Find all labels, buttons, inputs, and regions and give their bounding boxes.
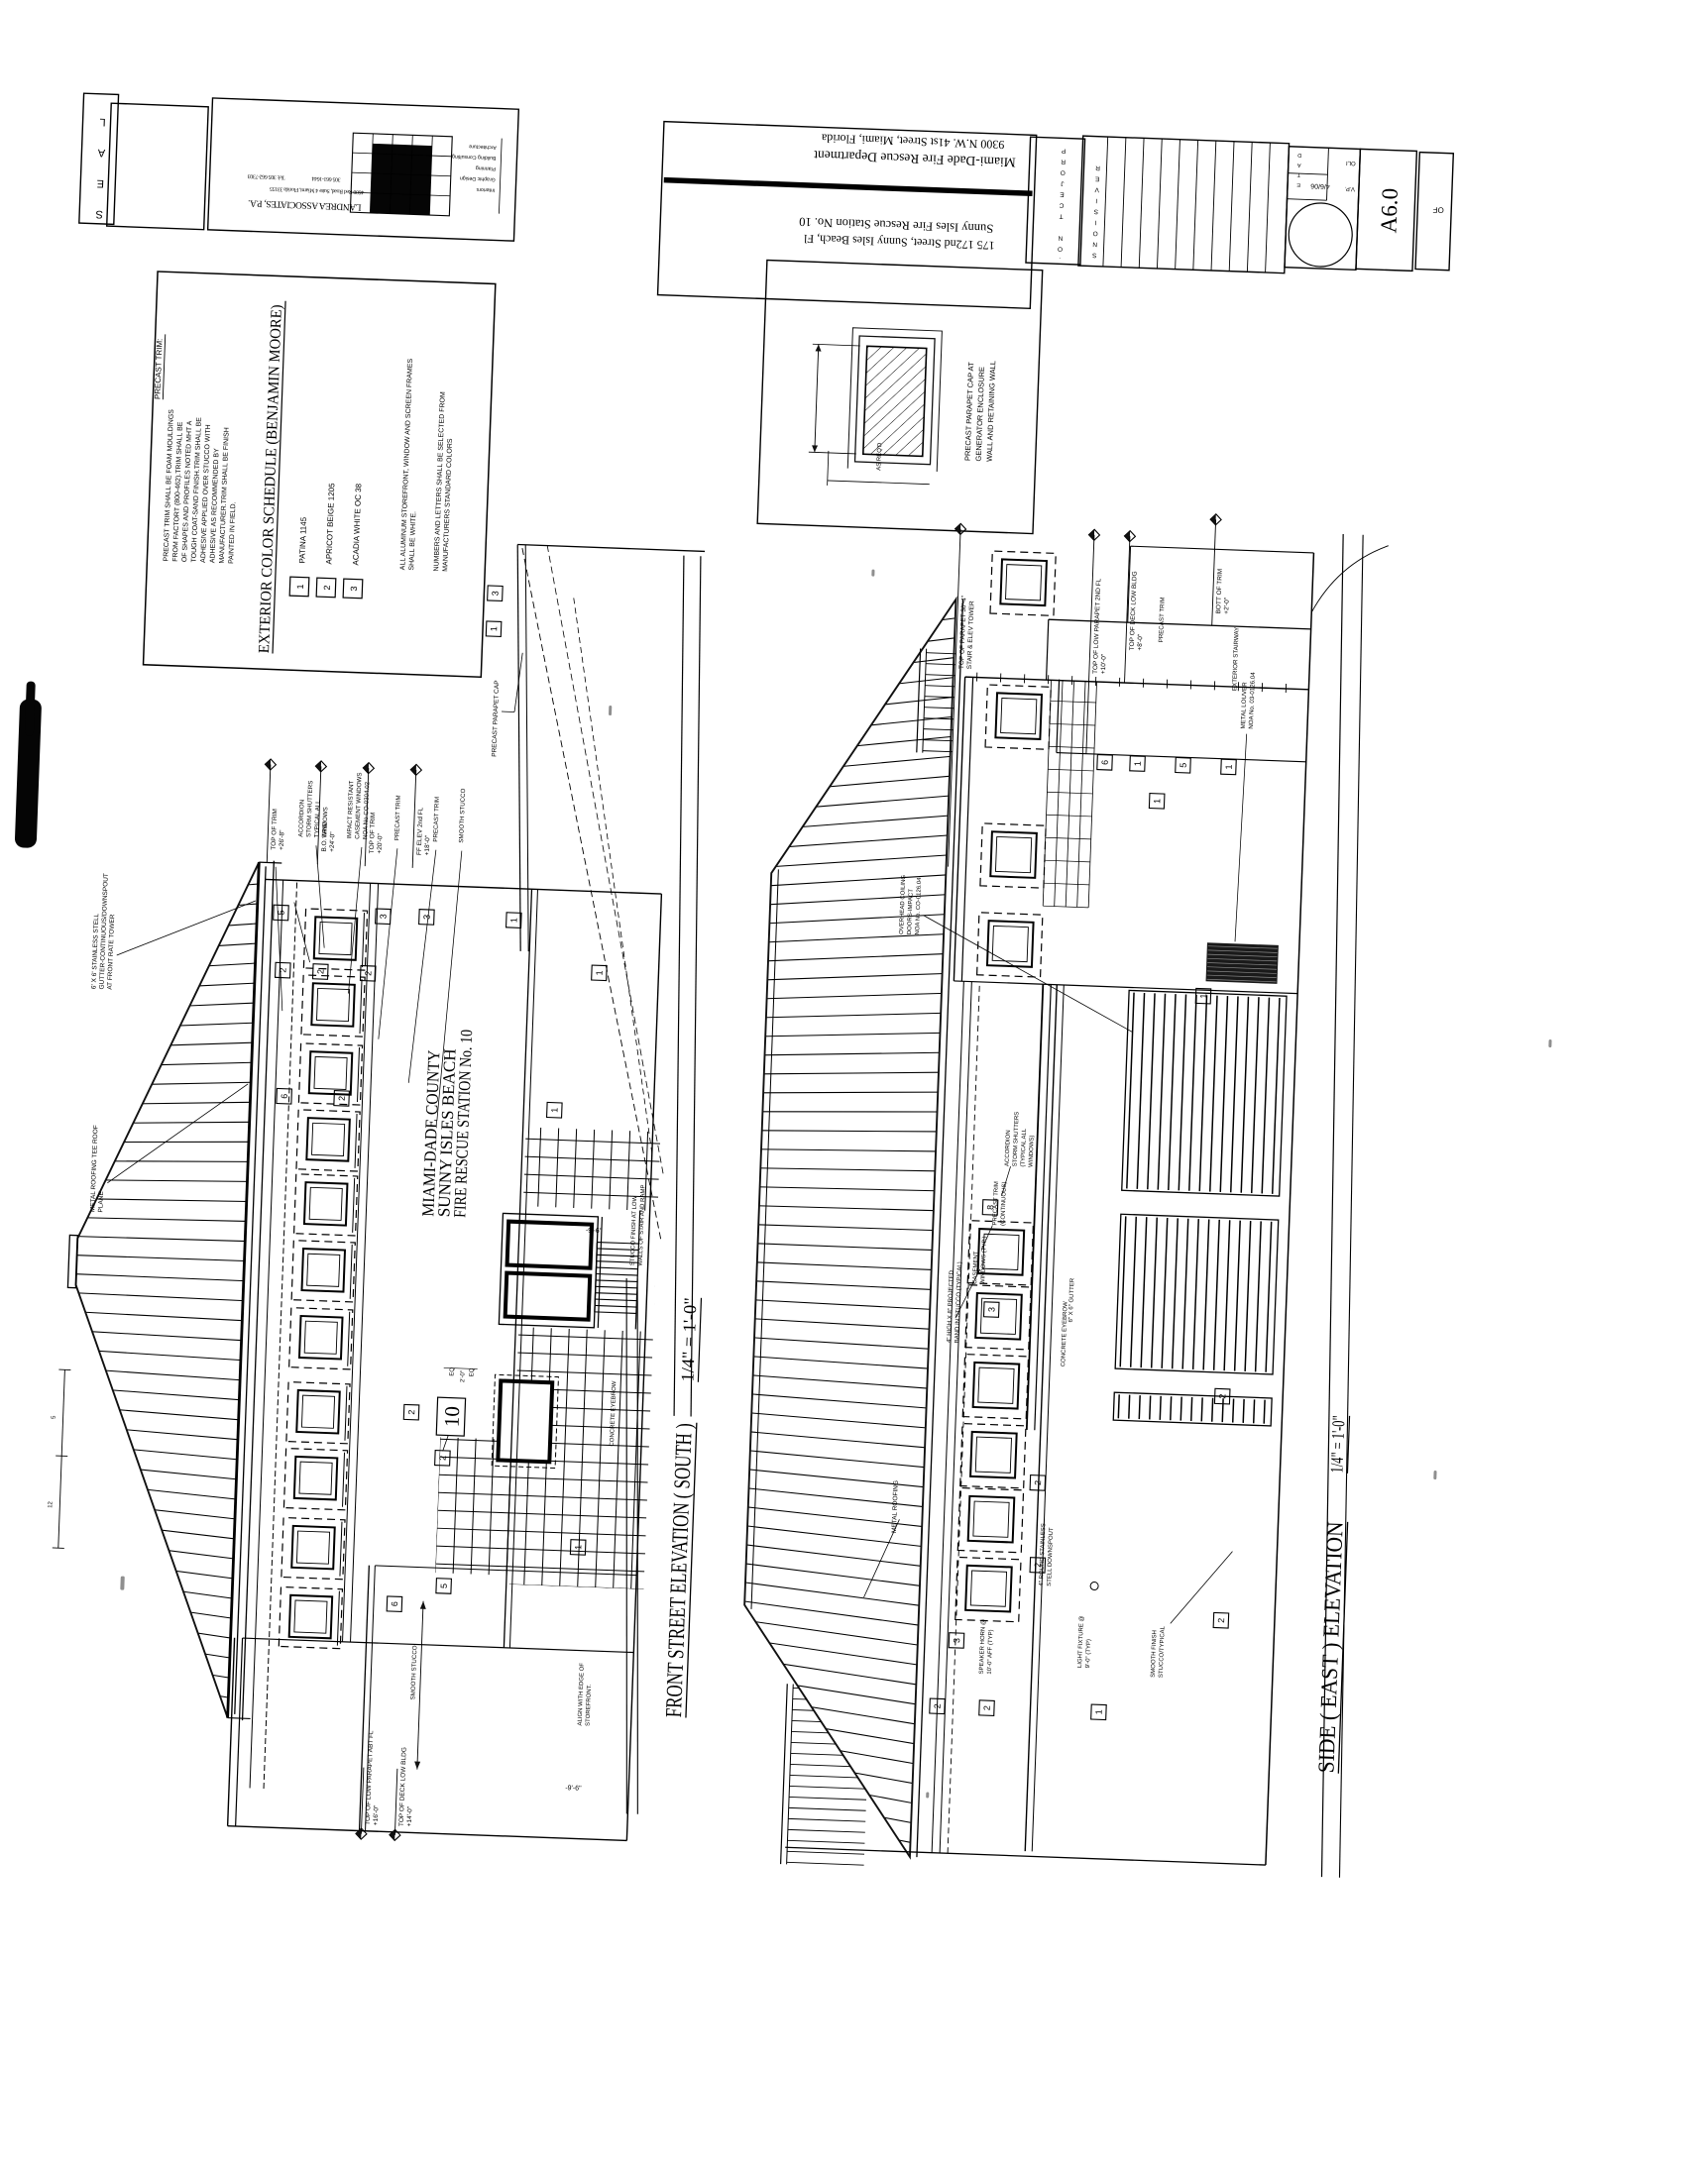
svg-text:+20'-0": +20'-0" — [377, 832, 385, 853]
svg-text:R: R — [1095, 164, 1100, 171]
svg-text:E: E — [1296, 181, 1300, 187]
svg-text:PATINA 1145: PATINA 1145 — [297, 516, 308, 564]
svg-text:CASEMENT: CASEMENT — [972, 1251, 979, 1284]
svg-text:1: 1 — [1198, 993, 1208, 998]
svg-text:TYPICAL ALL: TYPICAL ALL — [313, 800, 321, 838]
svg-text:1: 1 — [1133, 761, 1143, 766]
svg-text:2'-0": 2'-0" — [460, 1370, 466, 1382]
svg-text:L: L — [99, 116, 106, 128]
svg-text:A6.0: A6.0 — [1376, 187, 1403, 233]
svg-text:D: D — [1297, 152, 1301, 158]
svg-text:2: 2 — [315, 969, 325, 974]
svg-text:3: 3 — [378, 914, 388, 919]
svg-text:J: J — [1061, 179, 1065, 186]
svg-text:ACCORDION: ACCORDION — [297, 800, 305, 837]
svg-text:3: 3 — [421, 915, 431, 920]
svg-text:OF: OF — [1432, 205, 1444, 214]
svg-text:5: 5 — [1179, 763, 1188, 768]
svg-text:3: 3 — [952, 1638, 961, 1643]
svg-text:1: 1 — [489, 626, 499, 631]
svg-text:Interiors: Interiors — [476, 186, 495, 193]
svg-text:2: 2 — [406, 1409, 416, 1414]
svg-text:-9'-6": -9'-6" — [586, 1227, 603, 1235]
svg-text:2: 2 — [1033, 1480, 1043, 1485]
svg-text:12: 12 — [48, 1500, 54, 1508]
svg-text:O: O — [1061, 168, 1066, 175]
svg-text:1: 1 — [573, 1545, 583, 1550]
svg-text:+16'-0": +16'-0" — [373, 1804, 381, 1825]
svg-text:10: 10 — [440, 1406, 465, 1428]
svg-text:305 661-1644: 305 661-1644 — [311, 175, 340, 182]
svg-text:2: 2 — [1217, 1393, 1227, 1398]
svg-text:R: R — [1061, 158, 1066, 164]
svg-text:+10'-0": +10'-0" — [1100, 653, 1108, 674]
svg-text:4/6/06: 4/6/06 — [1310, 182, 1330, 190]
svg-text:2: 2 — [982, 1705, 992, 1710]
svg-text:N: N — [1092, 241, 1097, 248]
svg-text:WINDOWS: WINDOWS — [321, 807, 329, 838]
svg-text:1/4" = 1'-0": 1/4" = 1'-0" — [677, 1297, 700, 1382]
svg-text:1/4" = 1'-0": 1/4" = 1'-0" — [1326, 1415, 1348, 1474]
svg-text:3: 3 — [349, 586, 359, 591]
svg-text:+8'-0": +8'-0" — [1137, 633, 1145, 651]
svg-text:1: 1 — [549, 1108, 559, 1113]
svg-text:+18'-0": +18'-0" — [424, 834, 432, 855]
svg-text:O: O — [1092, 230, 1097, 237]
svg-text:A: A — [1297, 162, 1301, 167]
svg-text:+26'-8": +26'-8" — [279, 829, 286, 850]
svg-text:6: 6 — [280, 1094, 289, 1099]
svg-text:P: P — [1062, 147, 1067, 154]
svg-text:8: 8 — [985, 1205, 995, 1210]
svg-text:V.P.: V.P. — [1345, 185, 1356, 191]
svg-text:A: A — [97, 147, 105, 159]
svg-text:2: 2 — [337, 1096, 347, 1101]
svg-text:C: C — [1059, 201, 1064, 208]
svg-text:6: 6 — [1100, 760, 1110, 765]
svg-text:1: 1 — [1094, 1709, 1104, 1714]
svg-text:Planning: Planning — [476, 164, 497, 171]
svg-text:1: 1 — [295, 584, 305, 589]
svg-text:2: 2 — [278, 967, 287, 972]
svg-text:T: T — [1060, 212, 1064, 219]
svg-text:2: 2 — [1033, 1563, 1043, 1568]
svg-text:2: 2 — [1216, 1618, 1226, 1623]
svg-text:E: E — [96, 177, 104, 189]
svg-text:+24'-0": +24'-0" — [329, 831, 337, 852]
svg-text:5: 5 — [439, 1583, 449, 1588]
svg-text:2: 2 — [322, 585, 332, 590]
svg-text:PLANE: PLANE — [97, 1190, 105, 1212]
svg-text:1: 1 — [1224, 764, 1234, 769]
svg-text:+14'-0": +14'-0" — [406, 1805, 414, 1826]
svg-text:3: 3 — [491, 591, 501, 596]
svg-text:3: 3 — [986, 1307, 996, 1312]
svg-text:OLI: OLI — [1346, 160, 1356, 165]
svg-text:1: 1 — [508, 918, 518, 923]
svg-text:-9'-6": -9'-6" — [565, 1785, 582, 1793]
svg-text:O: O — [1058, 245, 1063, 252]
svg-text:2: 2 — [437, 1456, 447, 1461]
svg-text:6: 6 — [390, 1601, 399, 1606]
svg-text:N: N — [1058, 234, 1063, 241]
svg-text:9'-0" (TYP): 9'-0" (TYP) — [1085, 1639, 1092, 1668]
svg-text:2: 2 — [363, 971, 373, 976]
svg-text:Architecture: Architecture — [469, 143, 497, 150]
svg-text:S: S — [95, 208, 103, 220]
svg-text:AS REQ'D: AS REQ'D — [876, 442, 883, 471]
svg-text:5: 5 — [277, 910, 286, 915]
svg-text:1: 1 — [595, 970, 605, 975]
svg-text:1: 1 — [1152, 799, 1162, 804]
svg-text:+2'-0": +2'-0" — [1223, 597, 1231, 614]
svg-text:WINDOWS): WINDOWS) — [1029, 1136, 1036, 1168]
svg-text:2: 2 — [933, 1703, 943, 1708]
